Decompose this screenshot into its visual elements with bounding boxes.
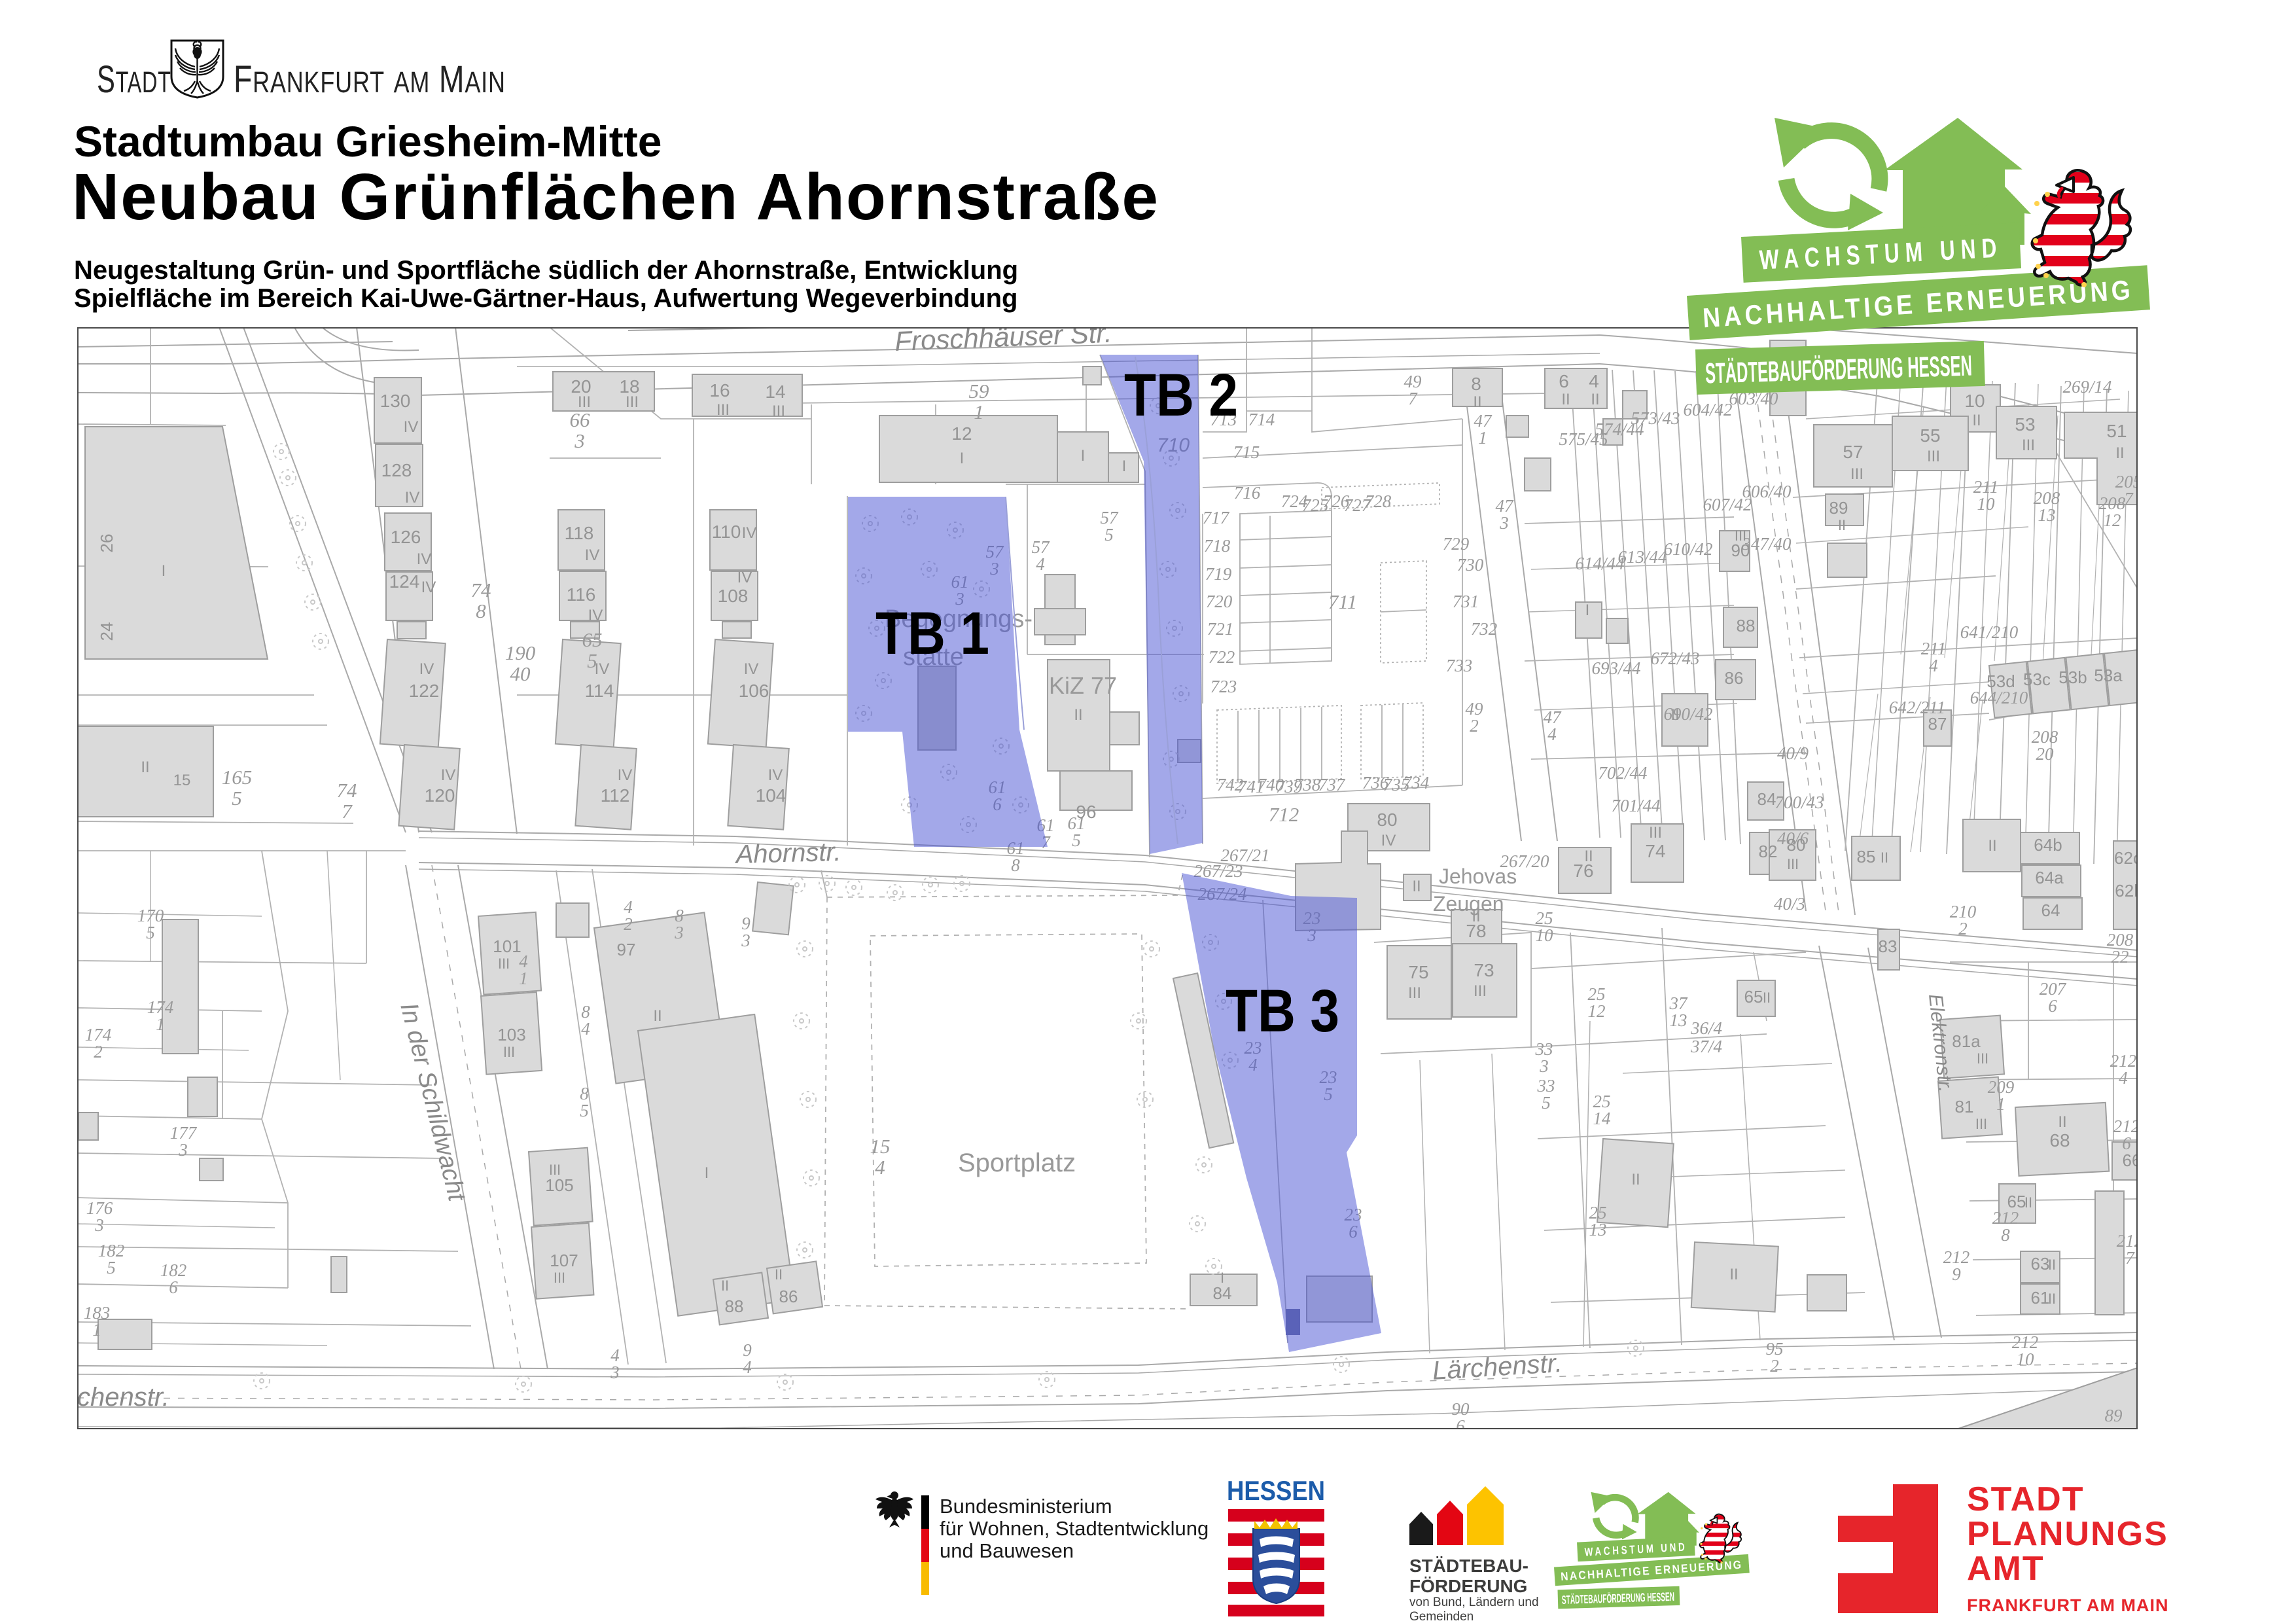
svg-text:II: II: [1074, 706, 1082, 724]
svg-text:TB 3: TB 3: [1226, 978, 1339, 1044]
svg-text:26: 26: [97, 534, 116, 553]
svg-text:124: 124: [389, 571, 420, 592]
svg-text:672/43: 672/43: [1650, 649, 1699, 668]
svg-text:730: 730: [1457, 555, 1484, 575]
svg-text:III: III: [1408, 984, 1421, 1002]
svg-text:641/210: 641/210: [1960, 622, 2019, 642]
svg-text:53c: 53c: [2023, 669, 2051, 689]
svg-text:5: 5: [146, 923, 155, 942]
svg-text:105: 105: [545, 1175, 573, 1195]
svg-text:614/44: 614/44: [1575, 554, 1624, 573]
svg-text:97: 97: [617, 940, 636, 959]
svg-text:63: 63: [2031, 1254, 2050, 1274]
svg-text:Jehovas: Jehovas: [1439, 865, 1517, 888]
svg-text:III: III: [772, 402, 785, 420]
svg-text:STADT: STADT: [1967, 1480, 2084, 1518]
svg-text:II: II: [1412, 878, 1421, 895]
svg-text:IV: IV: [618, 766, 633, 784]
svg-text:5: 5: [1072, 830, 1081, 850]
svg-text:4: 4: [875, 1156, 885, 1179]
svg-text:Zeugen: Zeugen: [1433, 892, 1504, 916]
svg-text:64a: 64a: [2035, 868, 2064, 887]
svg-text:4: 4: [1929, 656, 1938, 675]
svg-text:719: 719: [1205, 564, 1232, 584]
svg-text:120: 120: [425, 785, 455, 806]
svg-text:TB 1: TB 1: [875, 600, 989, 667]
svg-text:IV: IV: [421, 579, 436, 596]
svg-text:116: 116: [567, 584, 596, 605]
svg-text:122: 122: [409, 681, 440, 701]
svg-text:88: 88: [1737, 616, 1756, 635]
svg-text:14: 14: [765, 382, 785, 402]
svg-text:II: II: [653, 1007, 662, 1025]
svg-text:2: 2: [94, 1042, 103, 1061]
svg-text:von Bund, Ländern und: von Bund, Ländern und: [1409, 1596, 1539, 1609]
svg-text:III: III: [1850, 465, 1863, 483]
svg-text:12: 12: [1588, 1001, 1606, 1021]
svg-text:737: 737: [1318, 775, 1346, 794]
svg-text:7: 7: [342, 800, 353, 823]
svg-text:73: 73: [1474, 960, 1494, 980]
svg-text:II: II: [1729, 1266, 1738, 1283]
svg-text:HESSEN: HESSEN: [1227, 1475, 1325, 1506]
svg-text:1: 1: [1996, 1094, 2005, 1114]
svg-text:III: III: [503, 1044, 515, 1060]
svg-text:IV: IV: [595, 660, 610, 678]
svg-text:65: 65: [2007, 1192, 2026, 1211]
svg-text:62b: 62b: [2115, 881, 2143, 901]
svg-text:I: I: [705, 1164, 709, 1182]
svg-text:III: III: [1927, 448, 1940, 465]
svg-text:103: 103: [497, 1025, 525, 1044]
svg-text:86: 86: [1725, 668, 1744, 688]
svg-text:I: I: [960, 450, 964, 467]
svg-text:55: 55: [1920, 425, 1940, 446]
svg-text:6: 6: [2048, 996, 2057, 1016]
svg-text:III: III: [549, 1162, 561, 1178]
svg-text:717: 717: [1203, 508, 1230, 527]
svg-text:721: 721: [1207, 619, 1234, 639]
svg-text:83: 83: [1879, 936, 1898, 956]
svg-text:III: III: [1735, 527, 1746, 544]
svg-text:40/3: 40/3: [1774, 894, 1805, 914]
svg-text:3: 3: [741, 931, 751, 950]
svg-text:715: 715: [1233, 442, 1260, 462]
svg-text:40: 40: [510, 662, 531, 685]
svg-text:Sportplatz: Sportplatz: [958, 1149, 1076, 1177]
svg-text:12: 12: [951, 423, 972, 444]
svg-text:10: 10: [1536, 925, 1554, 945]
svg-text:I: I: [1220, 1270, 1224, 1286]
svg-text:573/43: 573/43: [1631, 408, 1680, 428]
svg-text:106: 106: [739, 681, 769, 701]
svg-text:86: 86: [779, 1287, 798, 1306]
svg-text:16: 16: [709, 380, 730, 401]
svg-text:96: 96: [1076, 802, 1096, 822]
svg-text:107: 107: [550, 1251, 578, 1270]
svg-text:4: 4: [2119, 1068, 2128, 1088]
svg-text:702/44: 702/44: [1598, 763, 1647, 783]
svg-text:4: 4: [1036, 554, 1045, 574]
svg-text:53a: 53a: [2094, 666, 2123, 685]
svg-text:74: 74: [1645, 841, 1665, 861]
svg-text:III: III: [578, 393, 591, 411]
svg-text:4: 4: [743, 1357, 752, 1377]
svg-text:718: 718: [1204, 536, 1231, 556]
svg-text:4: 4: [581, 1019, 590, 1039]
svg-text:Ahornstr.: Ahornstr.: [734, 838, 841, 869]
svg-text:STÄDTEBAU-: STÄDTEBAU-: [1409, 1556, 1528, 1576]
svg-text:269/14: 269/14: [2062, 377, 2111, 397]
svg-text:110: 110: [712, 522, 741, 542]
svg-text:KiZ 77: KiZ 77: [1049, 672, 1117, 699]
svg-text:1: 1: [519, 969, 528, 988]
svg-text:PLANUNGS: PLANUNGS: [1967, 1515, 2168, 1553]
svg-text:I: I: [162, 562, 166, 580]
svg-text:84: 84: [1213, 1283, 1232, 1303]
svg-text:723: 723: [1210, 677, 1237, 696]
svg-text:für Wohnen, Stadtentwicklung: für Wohnen, Stadtentwicklung: [940, 1517, 1209, 1540]
svg-text:81: 81: [1955, 1097, 1974, 1116]
svg-text:738: 738: [1294, 775, 1321, 794]
svg-text:8: 8: [1011, 855, 1020, 875]
svg-text:85: 85: [1857, 847, 1876, 866]
svg-text:II: II: [1473, 393, 1481, 411]
svg-text:57: 57: [1843, 442, 1863, 462]
svg-text:6: 6: [1456, 1416, 1465, 1436]
svg-text:3: 3: [178, 1140, 188, 1160]
svg-text:88: 88: [725, 1296, 744, 1316]
svg-text:66: 66: [2123, 1150, 2142, 1170]
svg-text:und Bauwesen: und Bauwesen: [940, 1539, 1074, 1562]
svg-text:IV: IV: [588, 607, 603, 624]
svg-text:14: 14: [1593, 1109, 1611, 1128]
svg-text:118: 118: [565, 523, 594, 543]
svg-text:3: 3: [610, 1363, 620, 1382]
svg-text:8: 8: [476, 599, 486, 622]
svg-text:7: 7: [2125, 1248, 2135, 1268]
svg-text:108: 108: [718, 586, 749, 606]
svg-text:165: 165: [222, 766, 253, 789]
svg-text:75: 75: [1408, 962, 1428, 982]
svg-text:9: 9: [1952, 1264, 1961, 1284]
svg-text:720: 720: [1206, 592, 1233, 611]
svg-text:714: 714: [1248, 410, 1275, 429]
svg-text:IV: IV: [585, 546, 600, 564]
svg-text:III: III: [554, 1270, 565, 1286]
svg-text:732: 732: [1471, 619, 1498, 639]
svg-text:101: 101: [493, 936, 521, 956]
svg-text:729: 729: [1443, 534, 1470, 554]
svg-text:13: 13: [1670, 1010, 1687, 1030]
svg-text:6: 6: [169, 1277, 178, 1297]
svg-text:15: 15: [870, 1135, 891, 1158]
svg-text:4: 4: [1547, 724, 1557, 744]
svg-text:II: II: [1988, 837, 1996, 855]
svg-text:II: II: [1631, 1171, 1640, 1188]
svg-text:190: 190: [505, 641, 536, 664]
svg-text:3: 3: [1499, 513, 1509, 533]
svg-text:III: III: [1977, 1050, 1988, 1067]
svg-text:114: 114: [585, 681, 614, 701]
svg-text:59: 59: [969, 380, 989, 402]
svg-text:5: 5: [580, 1101, 589, 1120]
svg-text:IV: IV: [1381, 832, 1396, 849]
svg-text:2: 2: [1470, 716, 1479, 736]
svg-text:104: 104: [756, 785, 786, 806]
svg-text:5: 5: [232, 787, 242, 810]
svg-text:10: 10: [1964, 391, 1985, 411]
svg-text:II: II: [721, 1277, 729, 1294]
svg-text:13: 13: [2038, 505, 2056, 525]
svg-text:10: 10: [1977, 494, 1996, 514]
svg-text:81a: 81a: [1952, 1031, 1981, 1051]
svg-text:III: III: [716, 401, 730, 419]
svg-text:610/42: 610/42: [1663, 539, 1712, 559]
svg-text:22: 22: [2111, 947, 2129, 967]
svg-text:IV: IV: [744, 660, 759, 678]
svg-text:II: II: [1838, 517, 1846, 533]
svg-text:130: 130: [380, 391, 411, 411]
svg-text:AMT: AMT: [1967, 1550, 2045, 1588]
svg-text:TB 2: TB 2: [1124, 362, 1238, 429]
svg-text:II: II: [1591, 391, 1599, 408]
svg-text:III: III: [2022, 437, 2035, 454]
svg-text:II: II: [2048, 1257, 2056, 1273]
svg-text:IV: IV: [742, 524, 757, 542]
svg-text:84: 84: [1757, 789, 1776, 809]
svg-text:731: 731: [1453, 592, 1479, 611]
svg-text:II: II: [1561, 391, 1570, 408]
svg-text:64b: 64b: [2034, 835, 2062, 855]
svg-text:8: 8: [1471, 374, 1481, 394]
svg-text:112: 112: [601, 785, 630, 806]
svg-text:7: 7: [2124, 489, 2134, 508]
svg-text:711: 711: [1328, 590, 1357, 613]
svg-text:68: 68: [2049, 1130, 2070, 1150]
svg-text:53: 53: [2015, 414, 2035, 435]
svg-text:Gemeinden: Gemeinden: [1409, 1610, 1474, 1623]
svg-text:5: 5: [1542, 1093, 1551, 1113]
svg-text:607/42: 607/42: [1703, 495, 1752, 514]
svg-text:728: 728: [1365, 491, 1392, 511]
svg-text:2: 2: [1958, 919, 1968, 938]
svg-text:4: 4: [1589, 371, 1599, 391]
svg-text:II: II: [1881, 849, 1888, 866]
svg-text:7: 7: [1408, 389, 1418, 408]
svg-text:10: 10: [2017, 1349, 2035, 1369]
svg-text:12: 12: [2104, 510, 2121, 530]
svg-text:65: 65: [582, 628, 603, 651]
svg-text:II: II: [1670, 706, 1679, 724]
svg-text:IV: IV: [419, 660, 434, 678]
svg-text:604/42: 604/42: [1683, 400, 1732, 419]
svg-text:II: II: [2024, 1194, 2032, 1211]
svg-text:37/4: 37/4: [1690, 1037, 1722, 1056]
svg-text:36/4: 36/4: [1690, 1018, 1722, 1038]
svg-text:87: 87: [1928, 714, 1947, 734]
svg-text:IV: IV: [405, 489, 420, 507]
svg-text:I: I: [1081, 447, 1086, 465]
svg-text:IV: IV: [404, 418, 419, 436]
svg-text:74: 74: [337, 779, 357, 802]
svg-text:89: 89: [2105, 1406, 2123, 1425]
svg-text:I: I: [1585, 601, 1590, 619]
svg-text:700/43: 700/43: [1775, 793, 1824, 812]
svg-text:II: II: [2048, 1291, 2056, 1307]
svg-text:734: 734: [1403, 773, 1430, 793]
svg-text:IV: IV: [737, 569, 752, 586]
svg-text:II: II: [2058, 1113, 2066, 1131]
svg-text:II: II: [1584, 847, 1593, 865]
svg-text:66: 66: [570, 408, 591, 431]
svg-text:722: 722: [1209, 647, 1235, 667]
svg-text:III: III: [498, 955, 510, 972]
svg-text:701/44: 701/44: [1611, 796, 1660, 815]
svg-text:IV: IV: [417, 550, 432, 568]
svg-text:chenstr.: chenstr.: [77, 1383, 169, 1412]
svg-text:80: 80: [1377, 810, 1397, 830]
svg-text:I: I: [1122, 457, 1127, 475]
svg-text:IV: IV: [441, 766, 456, 784]
svg-text:1: 1: [974, 401, 984, 423]
svg-text:15: 15: [173, 772, 191, 789]
svg-text:74: 74: [471, 579, 491, 601]
svg-text:61: 61: [2031, 1288, 2050, 1308]
svg-text:III: III: [1975, 1116, 1987, 1132]
svg-text:III: III: [1787, 856, 1799, 872]
svg-text:II: II: [1972, 412, 1981, 429]
svg-text:II: II: [775, 1266, 783, 1283]
svg-text:5: 5: [107, 1258, 116, 1277]
svg-text:126: 126: [391, 527, 421, 547]
svg-text:II: II: [1763, 990, 1771, 1006]
svg-text:53b: 53b: [2058, 668, 2087, 687]
svg-text:3: 3: [674, 923, 684, 942]
svg-text:693/44: 693/44: [1591, 658, 1640, 678]
svg-text:40/9: 40/9: [1777, 743, 1809, 763]
svg-text:80: 80: [1787, 835, 1806, 855]
svg-text:3: 3: [94, 1215, 104, 1235]
svg-text:IV: IV: [768, 766, 783, 784]
svg-text:III: III: [626, 393, 639, 411]
svg-text:3: 3: [1539, 1056, 1549, 1076]
svg-text:III: III: [1474, 982, 1487, 1000]
svg-text:53d: 53d: [1987, 671, 2015, 691]
svg-text:FÖRDERUNG: FÖRDERUNG: [1409, 1576, 1527, 1596]
svg-text:2: 2: [624, 914, 633, 934]
svg-text:13: 13: [1589, 1220, 1607, 1240]
svg-text:Bundesministerium: Bundesministerium: [940, 1495, 1112, 1518]
svg-text:24: 24: [97, 622, 116, 641]
svg-text:8: 8: [2001, 1225, 2010, 1245]
svg-text:II: II: [141, 758, 149, 776]
svg-text:712: 712: [1269, 803, 1299, 826]
svg-text:3: 3: [574, 429, 585, 452]
svg-text:FRANKFURT AM MAIN: FRANKFURT AM MAIN: [1967, 1596, 2168, 1615]
svg-text:51: 51: [2106, 421, 2127, 441]
svg-text:82: 82: [1759, 842, 1778, 861]
svg-text:6: 6: [1559, 371, 1569, 391]
svg-text:II: II: [2115, 444, 2124, 462]
svg-text:613/44: 613/44: [1617, 547, 1667, 567]
svg-text:20: 20: [2036, 744, 2055, 764]
svg-text:1: 1: [156, 1014, 165, 1034]
svg-text:716: 716: [1234, 483, 1261, 503]
svg-text:1: 1: [92, 1320, 101, 1340]
svg-text:128: 128: [381, 460, 412, 480]
svg-text:89: 89: [1829, 498, 1848, 518]
svg-text:65: 65: [1744, 987, 1763, 1007]
svg-text:1: 1: [1478, 428, 1487, 448]
svg-text:2: 2: [1770, 1356, 1779, 1376]
svg-text:64: 64: [2041, 901, 2060, 920]
svg-text:5: 5: [1104, 525, 1114, 544]
svg-text:III: III: [1649, 824, 1662, 842]
svg-text:733: 733: [1446, 656, 1473, 675]
